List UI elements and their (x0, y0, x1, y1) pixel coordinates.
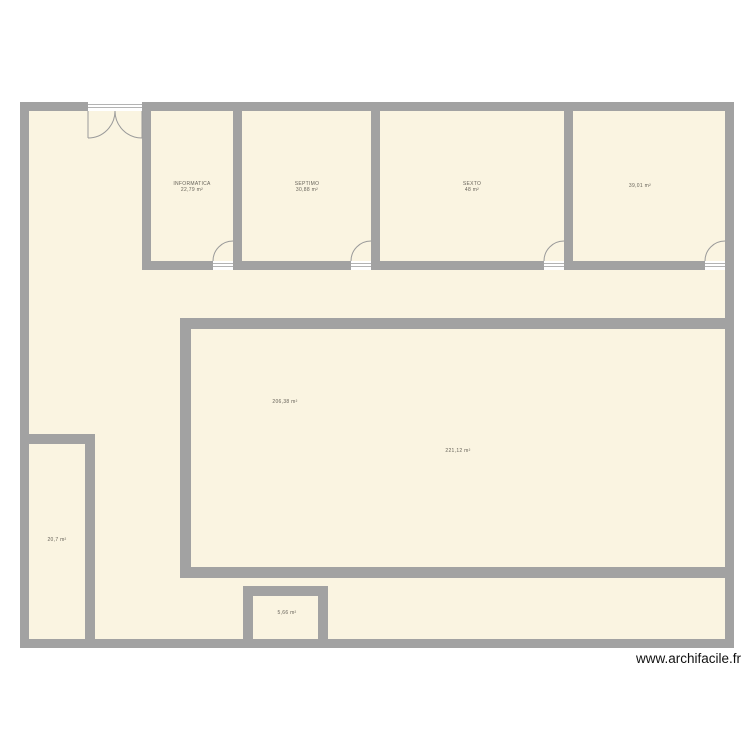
room-label-sexto-area: 48 m² (465, 187, 479, 193)
wall-bigroom-left (180, 318, 191, 578)
door-opening (88, 102, 142, 111)
room-label-cuarto-izquierdo-area: 20,7 m² (47, 537, 66, 543)
wall-outer-bottom (20, 639, 734, 648)
watermark-url: www.archifacile.fr (635, 651, 742, 666)
room-label-aula-derecha-area: 39,01 m² (629, 183, 651, 189)
wall-leftroom-top (20, 434, 95, 444)
door-opening (544, 261, 564, 270)
room-label-cuarto-pequeno-area: 5,66 m² (277, 610, 296, 616)
door-opening (351, 261, 371, 270)
wall-bigroom-bottom (180, 567, 734, 578)
floor-plan: INFORMATICA 22,79 m² SEPTIMO 30,88 m² SE… (0, 0, 750, 750)
room-label-informatica-area: 22,79 m² (181, 187, 203, 193)
room-label-sala-grande-area: 221,12 m² (445, 448, 470, 454)
wall-outer-left (20, 102, 29, 648)
wall-bigroom-top (180, 318, 734, 329)
wall-septimo-sexto (371, 102, 380, 270)
wall-hall-informatica (142, 102, 151, 270)
room-label-septimo-area: 30,88 m² (296, 187, 318, 193)
wall-informatica-septimo (233, 102, 242, 270)
wall-bottomroom-right (318, 586, 328, 648)
wall-leftroom-right (85, 434, 95, 648)
floor-plan-page: INFORMATICA 22,79 m² SEPTIMO 30,88 m² SE… (0, 0, 750, 750)
wall-outer-right (725, 102, 734, 648)
door-opening (705, 261, 725, 270)
wall-bottomroom-top (243, 586, 328, 596)
door-opening (213, 261, 233, 270)
wall-sexto-aula-derecha (564, 102, 573, 270)
wall-bottomroom-left (243, 586, 253, 648)
room-label-hall-area: 206,38 m² (272, 399, 297, 405)
